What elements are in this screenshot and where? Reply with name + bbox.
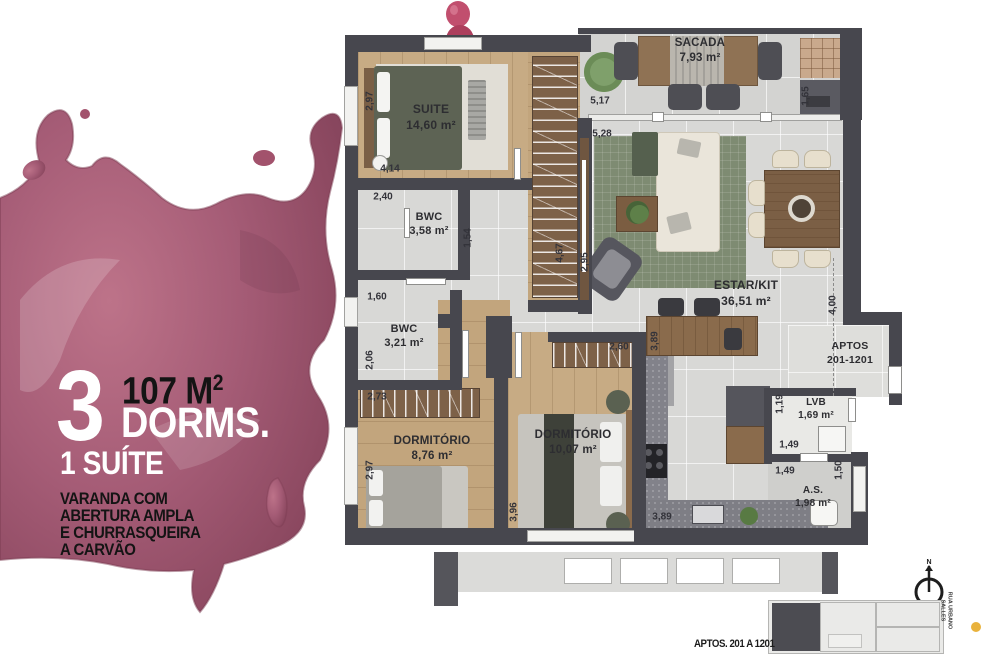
keyplan [768, 598, 944, 656]
as-door [800, 453, 828, 462]
wall-suite-bottom [358, 178, 532, 190]
dim-lvb-width: 1,49 [779, 440, 798, 451]
bwc2-window [344, 297, 358, 327]
wall-bottom-right [634, 528, 868, 545]
dorm2-pillow [600, 466, 622, 506]
label-dorm1: DORMITÓRIO8,76 m² [394, 434, 471, 464]
keyplan-core [828, 634, 862, 648]
feature-lines: VARANDA COM ABERTURA AMPLA E CHURRASQUEI… [60, 490, 201, 558]
suite-top-window [424, 37, 482, 50]
suite-bed-headboard [364, 68, 374, 168]
grill-counter-top [800, 38, 844, 78]
keyplan-unit [876, 602, 940, 627]
floorplan-marketing-page: 3 107 M2 DORMS. 1 SUÍTE VARANDA COM ABER… [0, 0, 1000, 667]
wall-sacada-top [578, 28, 848, 34]
feature-line: A CARVÃO [60, 541, 201, 558]
label-as: A.S.1,98 m² [795, 484, 831, 510]
sacada-sliding-door [588, 114, 842, 121]
label-sacada: SACADA7,93 m² [675, 36, 725, 66]
dim-dorm1-left: 2,97 [365, 460, 376, 479]
sofa-throw [632, 132, 658, 176]
kitchen-chair [724, 328, 742, 350]
wall-dorm-divider [494, 378, 508, 528]
ledge-cap-left [434, 552, 458, 606]
sacada-chair [614, 42, 638, 80]
sliding-door-handle [760, 112, 772, 122]
compass-north-letter: N [926, 559, 931, 566]
dim-lvb-depth: 1,19 [775, 394, 786, 413]
keyplan-unit-highlight [772, 603, 820, 651]
wall-right-living [843, 118, 861, 316]
dorm1-door [462, 330, 469, 378]
dorm2-door [515, 332, 522, 378]
keyplan-label: APTOS. 201 A 1201 [694, 638, 774, 650]
label-entry: APTOS201-1201 [827, 340, 873, 367]
sacada-chair [668, 84, 702, 110]
feature-line: E CHURRASQUEIRA [60, 524, 201, 541]
label-bwc2: BWC3,21 m² [384, 322, 423, 351]
kitchen-stool [658, 298, 684, 316]
sliding-door-handle [652, 112, 664, 122]
wall-sacada-right [840, 28, 862, 120]
ledge-cap-right [822, 552, 838, 594]
keyplan-unit [876, 627, 940, 652]
dim-tvwall: 2,95 [580, 252, 591, 271]
cooktop-burner [645, 449, 652, 456]
sacada-chair [706, 84, 740, 110]
dim-living-width: 5,28 [592, 129, 611, 140]
wall-bwc2-right [450, 290, 462, 390]
ledge-window [620, 558, 668, 584]
dim-corridor: 4,67 [555, 243, 566, 262]
kitchen-sink [692, 505, 724, 524]
dim-dorm2-wardrobe: 2,60 [609, 342, 628, 353]
cooktop-burner [656, 449, 663, 456]
big-number: 3 [56, 356, 105, 456]
label-lvb: LVB1,69 m² [798, 396, 834, 422]
dim-dorm1-wardrobe: 2,73 [367, 392, 386, 403]
dorm1-pillow [369, 500, 383, 526]
dining-chair [804, 250, 831, 268]
wall-hall-stub [438, 314, 456, 328]
street-name: RUA URBANO SALLES [940, 585, 953, 637]
entry-door [888, 366, 902, 394]
suite-pillow [377, 118, 390, 158]
dining-centerpiece [788, 195, 815, 222]
paint-splash-graphic [0, 0, 360, 667]
lvb-vanity [818, 426, 846, 452]
dorms-headline: DORMS. [121, 402, 270, 445]
lvb-door [848, 398, 856, 422]
ledge-window [732, 558, 780, 584]
dim-suite-left: 2,97 [365, 91, 376, 110]
label-suite: SUITE14,60 m² [406, 102, 456, 133]
street-marker-dot [971, 622, 981, 632]
dim-sacada-width: 5,17 [590, 96, 609, 107]
suite-bench [468, 80, 486, 140]
dim-bwc1-depth: 1,54 [463, 228, 474, 247]
dim-as-width: 1,49 [775, 466, 794, 477]
dim-suite-bottom: 4,14 [380, 164, 399, 175]
as-window [853, 466, 866, 512]
dorm1-window [344, 427, 358, 505]
dim-island: 3,89 [650, 331, 661, 350]
label-bwc1: BWC3,58 m² [409, 210, 448, 239]
wall-dorm2-top [548, 332, 646, 342]
ledge-window [676, 558, 724, 584]
kitchen-plant [740, 507, 758, 525]
feature-line: VARANDA COM [60, 490, 201, 507]
wall-dorm2-kitchen [632, 332, 646, 528]
dim-dorm2-depth: 3,96 [509, 502, 520, 521]
wall-lvb-left [764, 388, 772, 464]
dim-grill: 1,65 [801, 86, 812, 105]
label-estar: ESTAR/KIT36,51 m² [714, 278, 778, 309]
bwc2-sliding-door [406, 278, 446, 285]
dorm2-bottom-window [527, 530, 635, 542]
dim-kitchen-bottom: 3,89 [652, 512, 671, 523]
cooktop-burner [656, 462, 663, 469]
dining-chair [772, 150, 799, 168]
wall-bwc2-bottom [352, 380, 462, 390]
coffee-table-plant [626, 201, 649, 224]
suite-pillow [377, 72, 390, 112]
suite-door [514, 148, 521, 180]
feature-line: ABERTURA AMPLA [60, 507, 201, 524]
wall-door-pier [486, 316, 512, 378]
dim-bwc2-depth: 2,06 [365, 350, 376, 369]
dining-chair [804, 150, 831, 168]
label-dorm2: DORMITÓRIO10,07 m² [535, 428, 612, 458]
dorm2-pouf [606, 390, 630, 414]
sacada-chair [758, 42, 782, 80]
dining-chair [772, 250, 799, 268]
dim-living-right: 4,00 [828, 295, 839, 314]
suite-headline: 1 SUÍTE [60, 447, 163, 479]
dim-bwc2-width: 1,60 [367, 292, 386, 303]
area-superscript: 2 [213, 370, 223, 395]
cooktop-burner [645, 462, 652, 469]
dim-bwc1-width: 2,40 [373, 192, 392, 203]
ledge-window [564, 558, 612, 584]
dim-as-depth: 1,50 [834, 460, 845, 479]
dim-line-4m [833, 258, 834, 396]
dining-chair [748, 180, 765, 206]
dining-chair [748, 212, 765, 238]
suite-side-window [344, 86, 358, 146]
